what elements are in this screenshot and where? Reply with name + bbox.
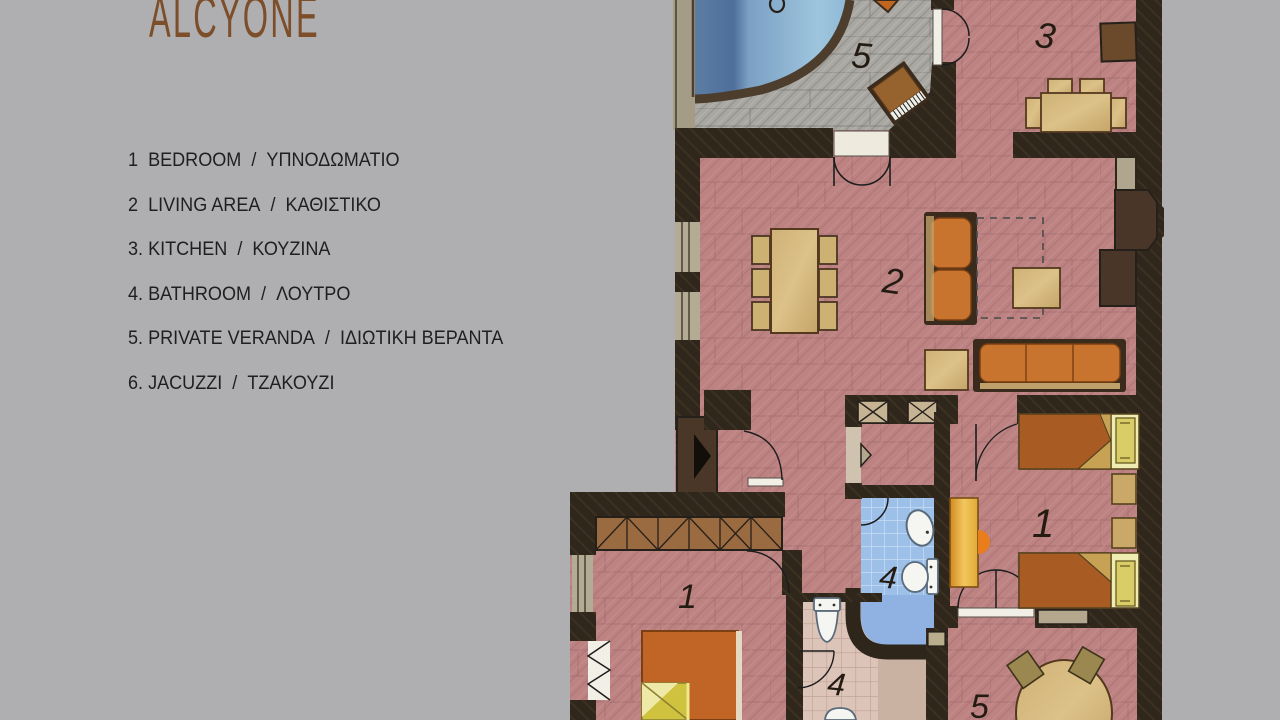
svg-text:1: 1 bbox=[678, 578, 697, 616]
svg-text:1: 1 bbox=[1032, 502, 1054, 546]
svg-text:4: 4 bbox=[878, 558, 899, 596]
svg-text:4: 4 bbox=[826, 665, 847, 703]
svg-text:5: 5 bbox=[970, 688, 989, 720]
